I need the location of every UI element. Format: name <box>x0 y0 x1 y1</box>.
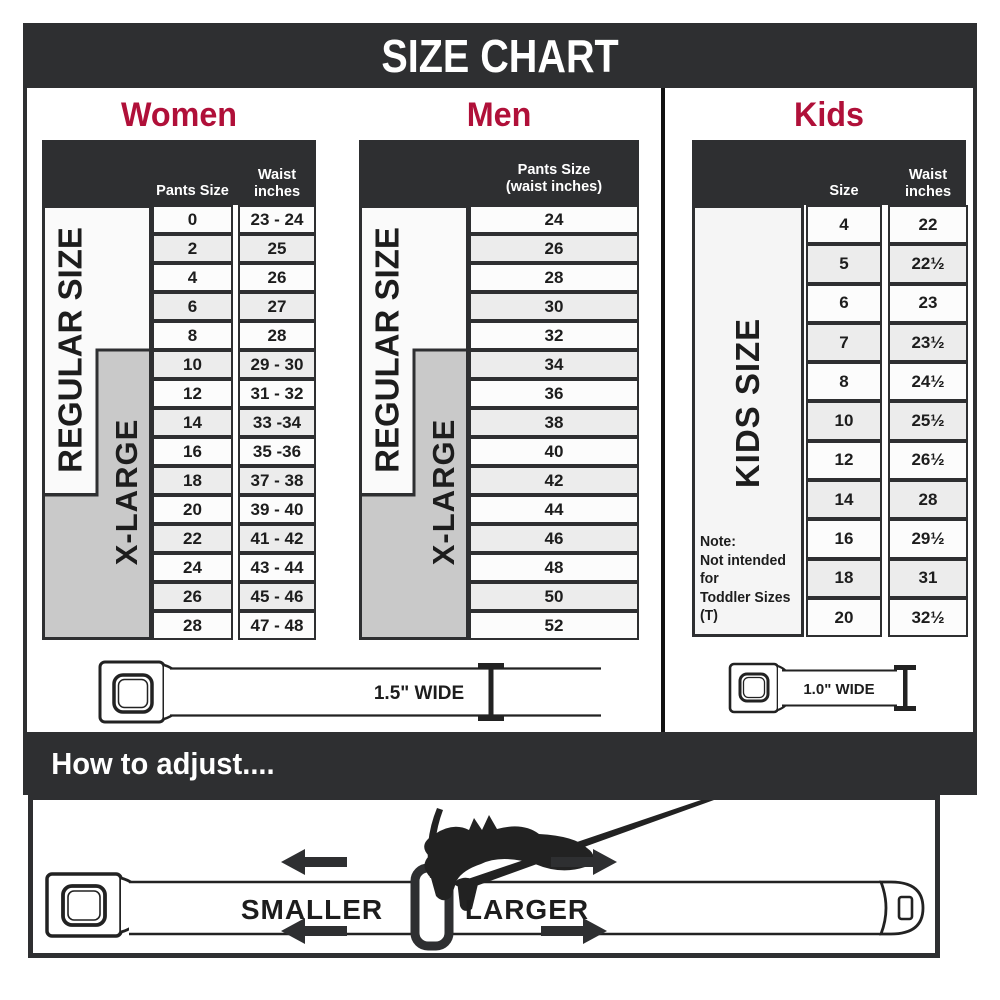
kids-belt-illustration: 1.0" WIDE <box>724 652 944 724</box>
size-chart-body: Women Men Kids Pants Size Waist inches R… <box>23 88 977 732</box>
table-row: 46 <box>469 524 639 553</box>
pants-size-cell: 12 <box>152 379 233 408</box>
pants-size-cell: 4 <box>152 263 233 292</box>
table-row: 1029 - 30 <box>152 350 316 379</box>
table-row: 723½ <box>806 323 968 362</box>
size-cell: 14 <box>806 480 882 519</box>
waist-cell: 25 <box>238 234 316 263</box>
table-row: 30 <box>469 292 639 321</box>
waist-cell: 29½ <box>888 519 968 558</box>
waist-cell: 25½ <box>888 401 968 440</box>
table-row: 44 <box>469 495 639 524</box>
men-regular-size-label: REGULAR SIZE <box>369 227 406 473</box>
pants-size-cell: 6 <box>152 292 233 321</box>
waist-cell: 41 - 42 <box>238 524 316 553</box>
size-cell: 12 <box>806 441 882 480</box>
waist-cell: 28 <box>238 321 316 350</box>
waist-cell: 23 <box>888 284 968 323</box>
pants-size-cell: 20 <box>152 495 233 524</box>
pants-size-cell: 18 <box>152 466 233 495</box>
left-arrow-icon <box>281 849 347 875</box>
pants-size-cell: 28 <box>469 263 639 292</box>
kids-size-label-box: KIDS SIZE Note: Not intended for Toddler… <box>692 205 804 637</box>
women-xlarge-label: X-LARGE <box>109 419 144 566</box>
pants-size-cell: 16 <box>152 437 233 466</box>
size-cell: 18 <box>806 559 882 598</box>
table-row: 824½ <box>806 362 968 401</box>
table-row: 50 <box>469 582 639 611</box>
table-row: 1837 - 38 <box>152 466 316 495</box>
waist-cell: 23½ <box>888 323 968 362</box>
how-to-adjust-diagram: SMALLER LARGER <box>28 795 940 958</box>
table-row: 32 <box>469 321 639 350</box>
size-cell: 16 <box>806 519 882 558</box>
table-row: 48 <box>469 553 639 582</box>
pants-size-cell: 44 <box>469 495 639 524</box>
waist-cell: 47 - 48 <box>238 611 316 640</box>
waist-cell: 31 - 32 <box>238 379 316 408</box>
pants-size-cell: 14 <box>152 408 233 437</box>
table-row: 40 <box>469 437 639 466</box>
waist-cell: 23 - 24 <box>238 205 316 234</box>
section-divider <box>661 88 665 732</box>
table-row: 225 <box>152 234 316 263</box>
table-row: 1025½ <box>806 401 968 440</box>
pants-size-cell: 52 <box>469 611 639 640</box>
size-cell: 6 <box>806 284 882 323</box>
men-table: Pants Size (waist inches) REGULAR SIZE X… <box>359 140 639 640</box>
table-row: 2241 - 42 <box>152 524 316 553</box>
table-row: 1629½ <box>806 519 968 558</box>
table-row: 426 <box>152 263 316 292</box>
larger-label: LARGER <box>465 894 589 925</box>
pants-size-cell: 34 <box>469 350 639 379</box>
table-row: 38 <box>469 408 639 437</box>
women-regular-size-label: REGULAR SIZE <box>52 227 89 473</box>
pants-size-cell: 26 <box>469 234 639 263</box>
kids-note: Note: Not intended for Toddler Sizes (T) <box>700 533 798 626</box>
adult-belt-width-label: 1.5" WIDE <box>374 683 464 704</box>
pants-size-cell: 46 <box>469 524 639 553</box>
table-row: 26 <box>469 234 639 263</box>
size-cell: 8 <box>806 362 882 401</box>
women-table-header: Pants Size Waist inches <box>42 140 316 205</box>
kids-heading: Kids <box>699 96 959 135</box>
table-row: 627 <box>152 292 316 321</box>
table-row: 42 <box>469 466 639 495</box>
seatbelt-buckle-icon <box>47 874 137 936</box>
pants-size-cell: 26 <box>152 582 233 611</box>
pants-size-cell: 50 <box>469 582 639 611</box>
women-pants-size-header: Pants Size <box>153 182 232 199</box>
table-row: 828 <box>152 321 316 350</box>
men-rows: 242628303234363840424446485052 <box>469 205 639 640</box>
size-cell: 7 <box>806 323 882 362</box>
title-bar: SIZE CHART <box>23 23 977 88</box>
how-to-adjust-bar: How to adjust.... <box>23 732 977 795</box>
kids-size-label: KIDS SIZE <box>729 318 767 488</box>
table-row: 52 <box>469 611 639 640</box>
table-row: 2039 - 40 <box>152 495 316 524</box>
table-row: 422 <box>806 205 968 244</box>
waist-cell: 33 -34 <box>238 408 316 437</box>
pants-size-cell: 22 <box>152 524 233 553</box>
waist-cell: 35 -36 <box>238 437 316 466</box>
waist-cell: 22 <box>888 205 968 244</box>
waist-cell: 22½ <box>888 244 968 283</box>
page-title: SIZE CHART <box>381 29 618 83</box>
men-pants-size-header: Pants Size (waist inches) <box>472 161 637 196</box>
men-xlarge-label: X-LARGE <box>426 419 461 566</box>
men-table-header: Pants Size (waist inches) <box>359 140 639 205</box>
pants-size-cell: 42 <box>469 466 639 495</box>
adult-belt-illustration: 1.5" WIDE <box>94 652 624 732</box>
women-table: Pants Size Waist inches REGULAR SIZE X-L… <box>42 140 316 640</box>
kids-size-header: Size <box>807 182 881 199</box>
table-row: 623 <box>806 284 968 323</box>
table-row: 36 <box>469 379 639 408</box>
kids-waist-header: Waist inches <box>889 166 967 201</box>
waist-cell: 45 - 46 <box>238 582 316 611</box>
waist-cell: 26½ <box>888 441 968 480</box>
kids-rows: 422522½623723½824½1025½1226½14281629½183… <box>806 205 968 637</box>
women-waist-header: Waist inches <box>239 166 315 201</box>
men-heading: Men <box>366 96 632 135</box>
waist-cell: 28 <box>888 480 968 519</box>
table-row: 2032½ <box>806 598 968 637</box>
seatbelt-buckle-icon <box>100 662 178 722</box>
pants-size-cell: 40 <box>469 437 639 466</box>
women-size-category-labels: REGULAR SIZE X-LARGE <box>42 205 152 640</box>
table-row: 1231 - 32 <box>152 379 316 408</box>
waist-cell: 24½ <box>888 362 968 401</box>
table-row: 522½ <box>806 244 968 283</box>
waist-cell: 43 - 44 <box>238 553 316 582</box>
table-row: 34 <box>469 350 639 379</box>
pants-size-cell: 8 <box>152 321 233 350</box>
smaller-label: SMALLER <box>241 894 383 925</box>
pants-size-cell: 38 <box>469 408 639 437</box>
pants-size-cell: 2 <box>152 234 233 263</box>
table-row: 2443 - 44 <box>152 553 316 582</box>
pants-size-cell: 36 <box>469 379 639 408</box>
size-cell: 20 <box>806 598 882 637</box>
table-row: 24 <box>469 205 639 234</box>
waist-cell: 29 - 30 <box>238 350 316 379</box>
women-heading: Women <box>49 96 309 135</box>
pants-size-cell: 0 <box>152 205 233 234</box>
pants-size-cell: 48 <box>469 553 639 582</box>
table-row: 2645 - 46 <box>152 582 316 611</box>
pants-size-cell: 28 <box>152 611 233 640</box>
pants-size-cell: 10 <box>152 350 233 379</box>
waist-cell: 32½ <box>888 598 968 637</box>
table-row: 2847 - 48 <box>152 611 316 640</box>
waist-cell: 26 <box>238 263 316 292</box>
pants-size-cell: 30 <box>469 292 639 321</box>
width-ibeam-icon <box>894 665 916 711</box>
size-chart-page: SIZE CHART Women Men Kids Pants Size Wai… <box>0 0 1000 1000</box>
kids-table-header: Size Waist inches <box>692 140 966 205</box>
table-row: 1635 -36 <box>152 437 316 466</box>
table-row: 1433 -34 <box>152 408 316 437</box>
kids-belt-width-label: 1.0" WIDE <box>803 681 874 698</box>
size-cell: 10 <box>806 401 882 440</box>
waist-cell: 37 - 38 <box>238 466 316 495</box>
pants-size-cell: 24 <box>469 205 639 234</box>
table-row: 28 <box>469 263 639 292</box>
adjust-illustration: SMALLER LARGER <box>33 800 935 953</box>
size-cell: 5 <box>806 244 882 283</box>
pants-size-cell: 32 <box>469 321 639 350</box>
waist-cell: 31 <box>888 559 968 598</box>
table-row: 1226½ <box>806 441 968 480</box>
pants-size-cell: 24 <box>152 553 233 582</box>
waist-cell: 39 - 40 <box>238 495 316 524</box>
how-to-adjust-title: How to adjust.... <box>23 746 275 782</box>
size-cell: 4 <box>806 205 882 244</box>
table-row: 1831 <box>806 559 968 598</box>
table-row: 1428 <box>806 480 968 519</box>
women-rows: 023 - 242254266278281029 - 301231 - 3214… <box>152 205 316 640</box>
seatbelt-buckle-icon <box>730 664 789 712</box>
belt-tip <box>881 882 923 934</box>
men-size-category-labels: REGULAR SIZE X-LARGE <box>359 205 469 640</box>
table-row: 023 - 24 <box>152 205 316 234</box>
kids-table: Size Waist inches KIDS SIZE Note: Not in… <box>692 140 966 637</box>
waist-cell: 27 <box>238 292 316 321</box>
